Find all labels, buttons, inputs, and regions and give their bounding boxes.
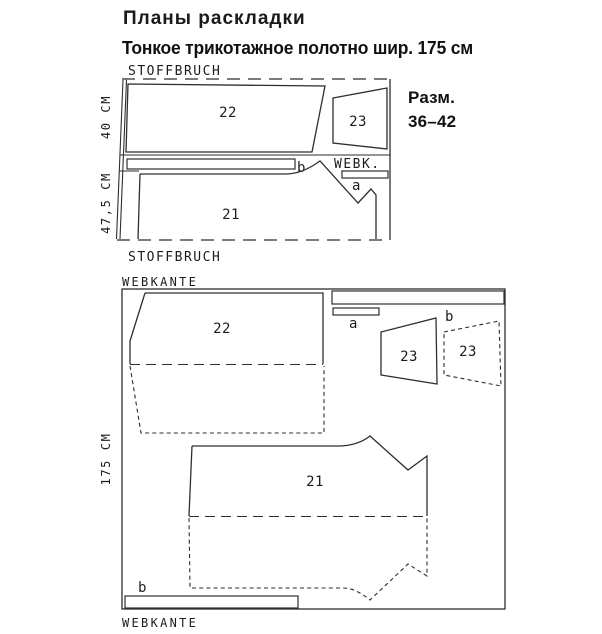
layout2-piece-21-label: 21: [306, 474, 324, 490]
layout1-strip-b-label: b: [297, 160, 306, 176]
layout1-strip-a-outline: [342, 171, 388, 178]
layout1-piece-23-label: 23: [349, 114, 367, 130]
layout1-selvage-label: WEBK.: [334, 157, 381, 172]
layout2-strip-b-top-label: b: [445, 309, 454, 325]
layout1-piece-22-label: 22: [219, 105, 237, 121]
layout1-piece-21-label: 21: [222, 207, 240, 223]
layout2-strip-b-bottom-label: b: [138, 580, 147, 596]
layout1-left-edge: [117, 80, 127, 239]
layout2-piece-22-mirror-outline: [130, 366, 324, 433]
layout1-strip-b-outline: [127, 159, 295, 169]
layout2-piece-22-label: 22: [213, 321, 231, 337]
layout2-piece-21-mirror-outline: [189, 518, 427, 600]
layout2-flat-fabric: WEBKANTE 175 CM 22 b a 23 23 21 b WEBKAN…: [99, 275, 505, 630]
layout1-fold-label-bottom: STOFFBRUCH: [128, 250, 221, 265]
layout1-folded-fabric: STOFFBRUCH STOFFBRUCH 40 CM 47,5 CM 22 2…: [99, 64, 390, 265]
layout2-selvage-label-bottom: WEBKANTE: [122, 616, 198, 630]
cutting-layout-diagram: STOFFBRUCH STOFFBRUCH 40 CM 47,5 CM 22 2…: [0, 0, 602, 634]
layout2-strip-a-outline: [333, 308, 379, 315]
layout1-fold-label-top: STOFFBRUCH: [128, 64, 221, 79]
layout1-piece-21-outline: [138, 161, 376, 239]
layout2-fabric-outline: [122, 289, 505, 609]
layout1-strip-a-label: a: [352, 178, 361, 194]
layout2-piece-23-mirror-label: 23: [459, 344, 477, 360]
layout2-strip-a-label: a: [349, 316, 358, 332]
layout2-selvage-label-top: WEBKANTE: [122, 275, 198, 289]
layout2-piece-23-label: 23: [400, 349, 418, 365]
layout2-strip-b-top-outline: [332, 291, 504, 304]
layout2-fabric-width-label: 175 CM: [99, 433, 113, 486]
layout1-height-top-label: 40 CM: [99, 95, 113, 139]
layout2-strip-b-bottom-outline: [125, 596, 298, 608]
layout1-height-bottom-label: 47,5 CM: [99, 172, 113, 234]
